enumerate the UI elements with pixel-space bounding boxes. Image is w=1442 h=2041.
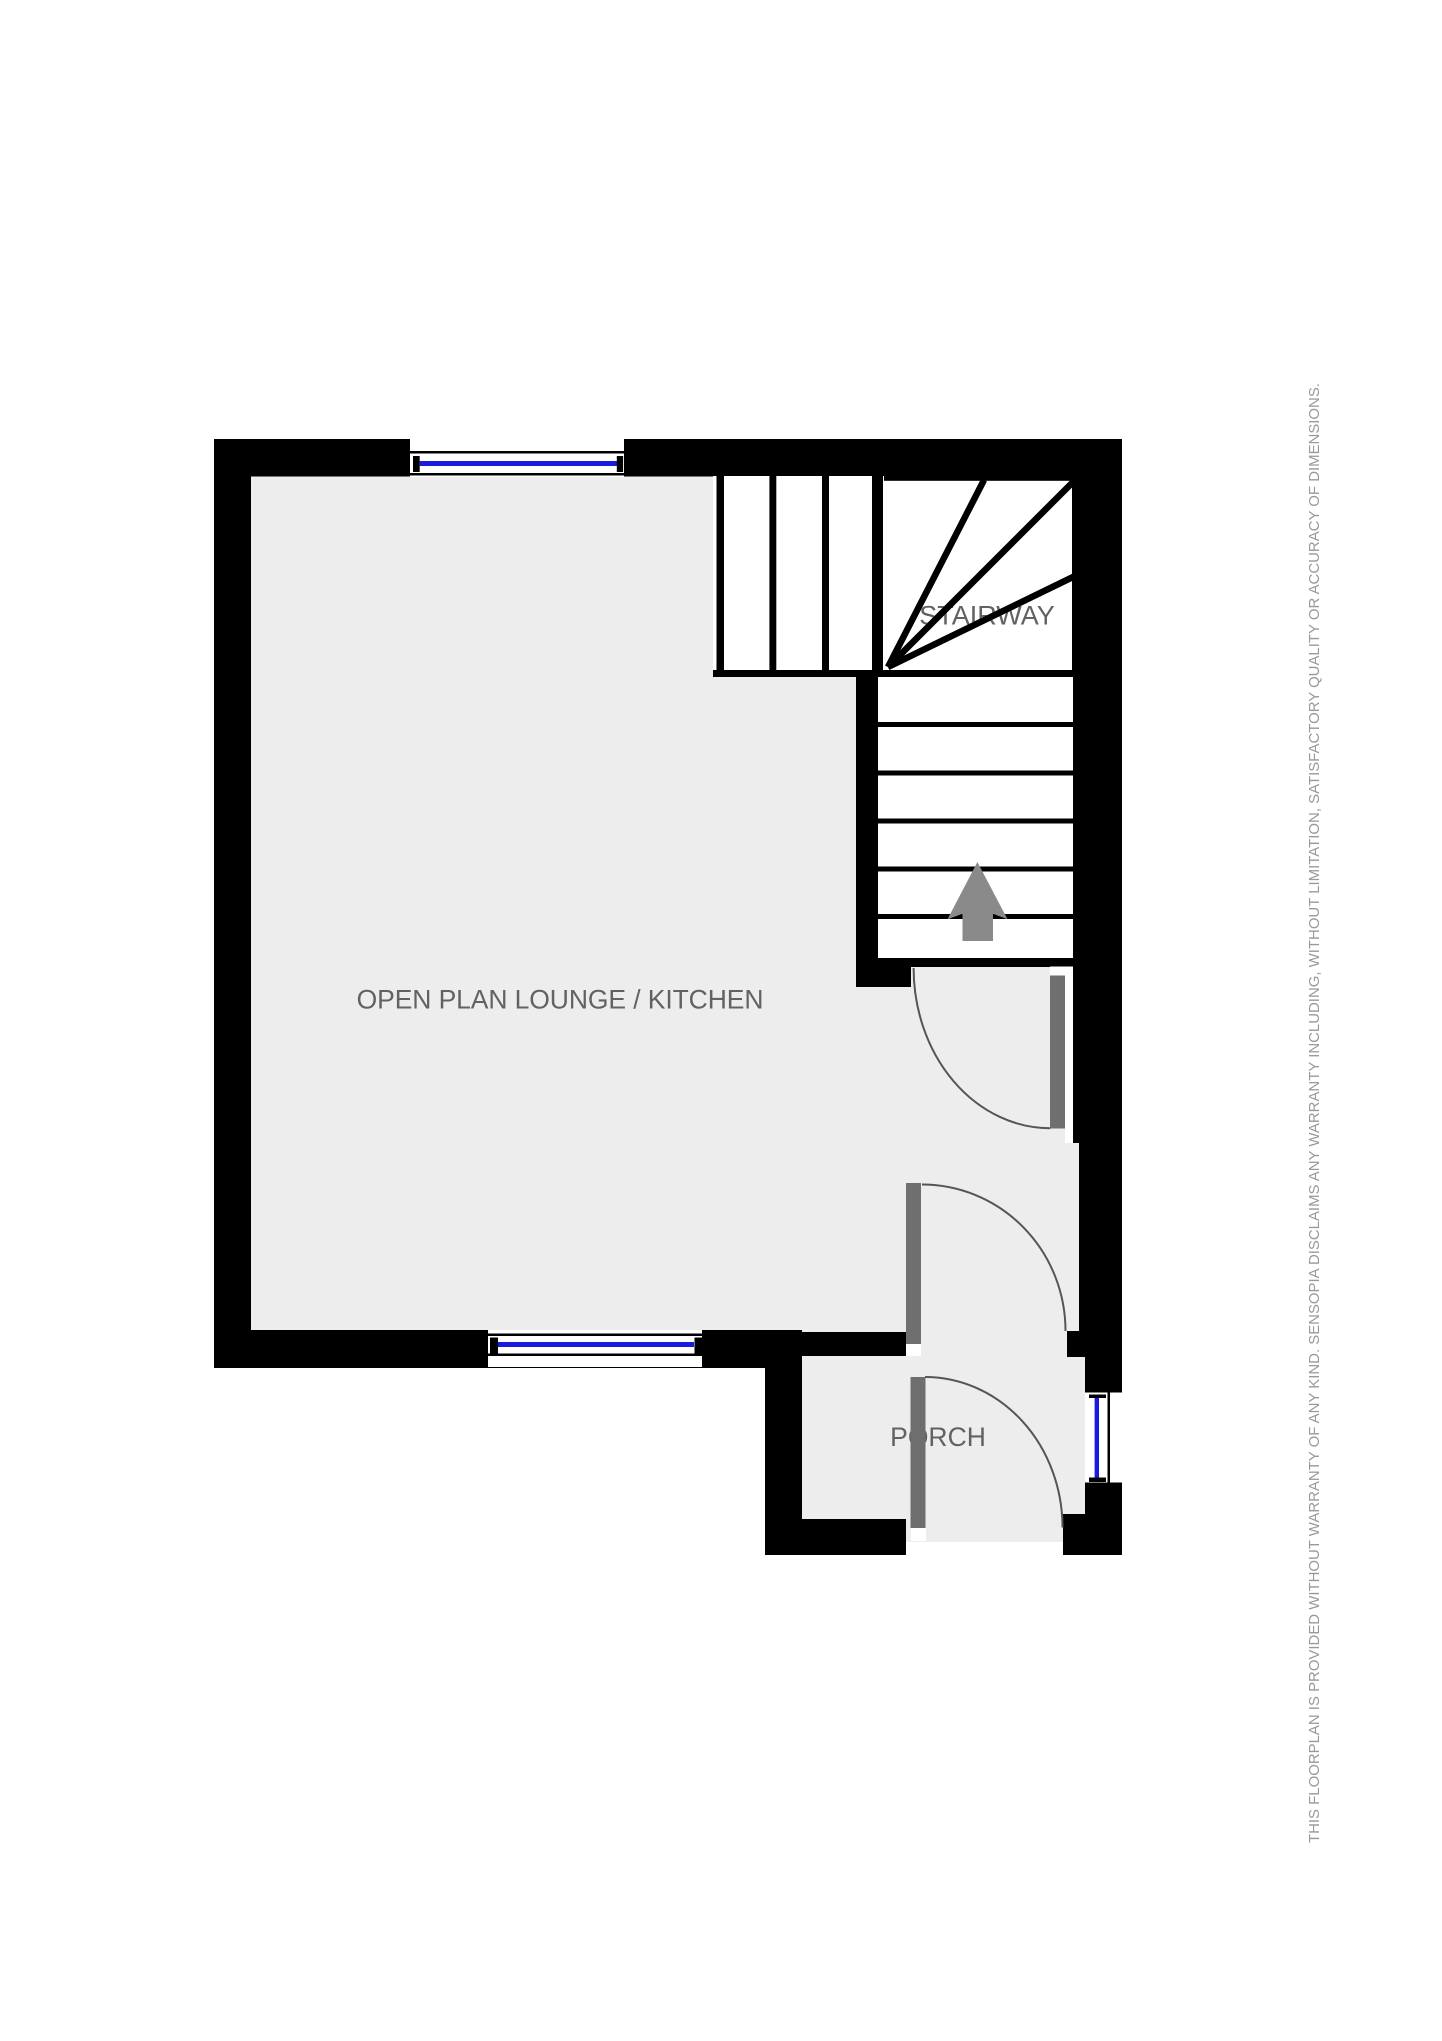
svg-text:PORCH: PORCH [890, 1422, 986, 1452]
svg-text:THIS FLOORPLAN IS PROVIDED WIT: THIS FLOORPLAN IS PROVIDED WITHOUT WARRA… [1306, 383, 1323, 1843]
svg-text:OPEN PLAN LOUNGE / KITCHEN: OPEN PLAN LOUNGE / KITCHEN [357, 985, 764, 1015]
